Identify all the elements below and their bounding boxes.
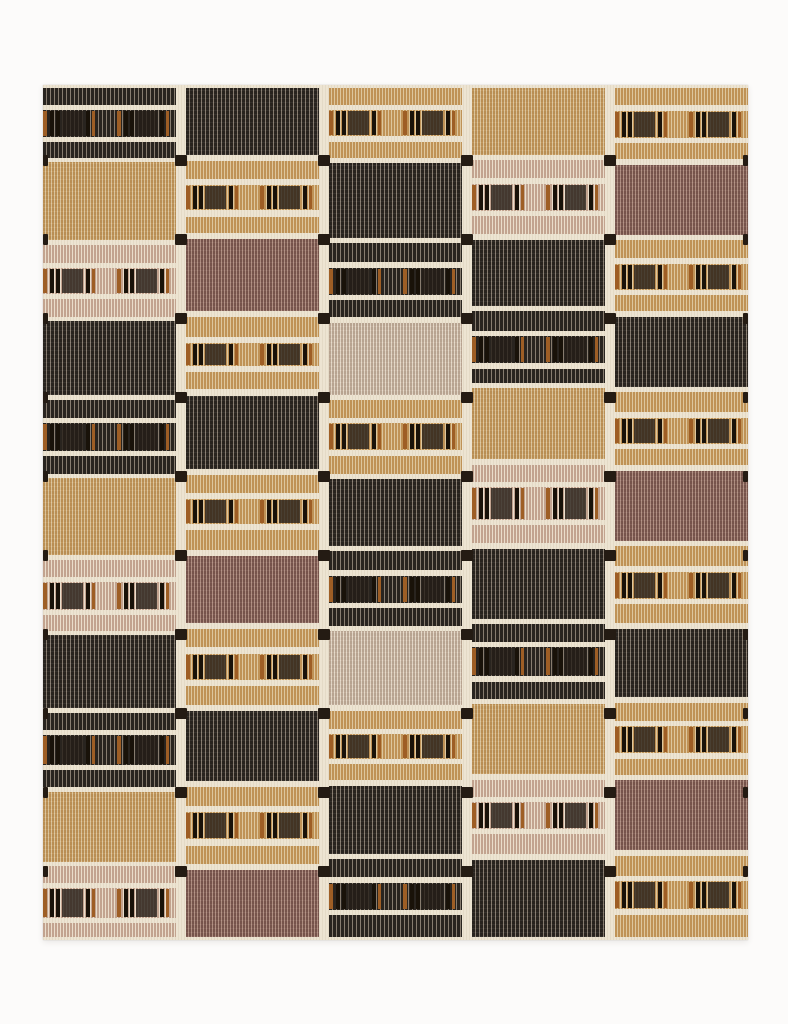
- junction-square: [604, 787, 616, 798]
- camel-band: [186, 686, 319, 705]
- junction-square: [461, 155, 473, 166]
- mauve-block: [186, 556, 319, 623]
- junction-square: [43, 234, 48, 245]
- junction-square: [318, 866, 330, 877]
- junction-square: [175, 313, 187, 324]
- junction-square: [743, 155, 748, 166]
- camel-band: [615, 240, 748, 258]
- mauve-block: [615, 471, 748, 541]
- blush-band: [43, 615, 176, 631]
- junction-square: [318, 471, 330, 482]
- charcoal-block: [43, 635, 176, 708]
- charcoal-dash-band: [43, 735, 176, 765]
- junction-square: [318, 629, 330, 640]
- charcoal-band: [329, 608, 462, 626]
- blush-band: [472, 216, 605, 234]
- junction-square: [604, 629, 616, 640]
- camel-block: [472, 388, 605, 459]
- junction-square: [461, 708, 473, 719]
- junction-square: [743, 471, 748, 482]
- greige-block: [329, 631, 462, 705]
- junction-square: [175, 550, 187, 561]
- blush-dash-band: [43, 888, 176, 918]
- blush-band: [472, 525, 605, 543]
- charcoal-block: [329, 786, 462, 854]
- charcoal-band: [472, 369, 605, 383]
- camel-band: [615, 915, 748, 937]
- junction-square: [604, 234, 616, 245]
- charcoal-band: [329, 859, 462, 877]
- junction-square: [43, 313, 48, 324]
- charcoal-block: [329, 479, 462, 546]
- junction-square: [175, 866, 187, 877]
- charcoal-block: [615, 317, 748, 387]
- camel-band: [186, 530, 319, 550]
- camel-dash-band: [186, 812, 319, 839]
- camel-dash-band: [615, 418, 748, 444]
- camel-band: [186, 317, 319, 337]
- blush-band: [472, 160, 605, 178]
- junction-square: [461, 471, 473, 482]
- junction-square: [461, 313, 473, 324]
- camel-dash-band: [615, 726, 748, 753]
- junction-square: [743, 629, 748, 640]
- camel-band: [615, 392, 748, 412]
- blush-band: [43, 299, 176, 317]
- camel-dash-band: [186, 499, 319, 524]
- camel-band: [615, 856, 748, 876]
- charcoal-block: [186, 396, 319, 469]
- charcoal-band: [43, 142, 176, 158]
- mauve-block: [615, 165, 748, 235]
- mauve-block: [615, 780, 748, 850]
- camel-band: [186, 787, 319, 806]
- charcoal-dash-band: [472, 647, 605, 676]
- camel-band: [186, 372, 319, 389]
- charcoal-band: [329, 300, 462, 317]
- camel-band: [329, 456, 462, 474]
- rug-photo: [43, 85, 748, 940]
- rug-column-3: [329, 85, 462, 940]
- junction-square: [743, 313, 748, 324]
- rug-column-1: [43, 85, 176, 940]
- charcoal-block: [472, 860, 605, 937]
- charcoal-block: [186, 711, 319, 781]
- blush-dash-band: [472, 184, 605, 211]
- camel-band: [329, 142, 462, 158]
- camel-band: [329, 400, 462, 418]
- blush-dash-band: [43, 582, 176, 610]
- mauve-block: [186, 870, 319, 937]
- camel-band: [615, 88, 748, 105]
- camel-band: [329, 711, 462, 729]
- photo-stage: [0, 0, 788, 1024]
- charcoal-block: [329, 163, 462, 238]
- camel-band: [186, 629, 319, 647]
- camel-band: [615, 295, 748, 311]
- rug-column-4: [472, 85, 605, 940]
- camel-dash-band: [186, 185, 319, 210]
- junction-square: [743, 234, 748, 245]
- camel-block: [43, 478, 176, 555]
- junction-square: [743, 550, 748, 561]
- charcoal-dash-band: [329, 268, 462, 295]
- greige-block: [329, 323, 462, 395]
- camel-dash-band: [615, 572, 748, 599]
- junction-square: [318, 234, 330, 245]
- charcoal-band: [472, 624, 605, 642]
- charcoal-band: [472, 682, 605, 699]
- junction-square: [43, 471, 48, 482]
- charcoal-block: [186, 88, 319, 155]
- camel-dash-band: [615, 264, 748, 290]
- junction-square: [461, 234, 473, 245]
- blush-dash-band: [472, 802, 605, 829]
- charcoal-block: [43, 321, 176, 395]
- charcoal-band: [329, 551, 462, 570]
- camel-band: [615, 759, 748, 775]
- blush-band: [43, 923, 176, 937]
- junction-square: [318, 392, 330, 403]
- junction-square: [43, 629, 48, 640]
- camel-band: [615, 703, 748, 721]
- junction-square: [461, 866, 473, 877]
- junction-square: [604, 708, 616, 719]
- camel-band: [186, 161, 319, 179]
- mauve-block: [186, 239, 319, 311]
- charcoal-dash-band: [329, 576, 462, 603]
- camel-block: [472, 88, 605, 155]
- junction-square: [604, 313, 616, 324]
- charcoal-block: [472, 549, 605, 619]
- junction-square: [175, 392, 187, 403]
- camel-band: [329, 88, 462, 105]
- junction-square: [43, 155, 48, 166]
- camel-dash-band: [186, 343, 319, 366]
- junction-square: [43, 787, 48, 798]
- junction-square: [461, 392, 473, 403]
- junction-square: [318, 313, 330, 324]
- charcoal-block: [615, 629, 748, 697]
- camel-band: [186, 217, 319, 233]
- camel-dash-band: [615, 111, 748, 138]
- junction-square: [175, 234, 187, 245]
- junction-square: [461, 787, 473, 798]
- junction-square: [43, 392, 48, 403]
- junction-square: [43, 550, 48, 561]
- charcoal-dash-band: [43, 110, 176, 137]
- junction-square: [604, 155, 616, 166]
- junction-square: [743, 866, 748, 877]
- blush-band: [43, 245, 176, 263]
- camel-band: [615, 449, 748, 465]
- junction-square: [318, 155, 330, 166]
- camel-block: [43, 792, 176, 862]
- charcoal-band: [43, 400, 176, 418]
- junction-square: [43, 866, 48, 877]
- blush-band: [43, 560, 176, 577]
- camel-dash-band: [186, 654, 319, 680]
- charcoal-band: [472, 311, 605, 331]
- rug-column-5: [615, 85, 748, 940]
- blush-band: [472, 834, 605, 854]
- junction-square: [604, 550, 616, 561]
- camel-dash-band: [329, 110, 462, 136]
- blush-band: [472, 780, 605, 797]
- junction-square: [175, 787, 187, 798]
- junction-square: [461, 629, 473, 640]
- rug-column-2: [186, 85, 319, 940]
- junction-square: [604, 471, 616, 482]
- junction-square: [175, 155, 187, 166]
- camel-band: [615, 604, 748, 623]
- charcoal-band: [329, 915, 462, 937]
- camel-dash-band: [329, 734, 462, 759]
- junction-square: [743, 708, 748, 719]
- blush-dash-band: [472, 487, 605, 520]
- junction-square: [743, 392, 748, 403]
- charcoal-band: [43, 456, 176, 474]
- blush-dash-band: [43, 268, 176, 294]
- blush-band: [472, 465, 605, 482]
- camel-band: [186, 475, 319, 493]
- camel-block: [472, 704, 605, 774]
- junction-square: [318, 787, 330, 798]
- junction-square: [175, 471, 187, 482]
- camel-dash-band: [329, 423, 462, 450]
- junction-square: [604, 866, 616, 877]
- junction-square: [43, 708, 48, 719]
- camel-band: [186, 846, 319, 864]
- blush-band: [43, 866, 176, 883]
- junction-square: [461, 550, 473, 561]
- camel-band: [615, 546, 748, 566]
- junction-square: [743, 787, 748, 798]
- charcoal-dash-band: [472, 336, 605, 363]
- camel-band: [615, 143, 748, 159]
- junction-square: [318, 708, 330, 719]
- junction-square: [175, 629, 187, 640]
- camel-block: [43, 162, 176, 240]
- charcoal-block: [472, 240, 605, 306]
- charcoal-dash-band: [43, 423, 176, 451]
- junction-square: [175, 708, 187, 719]
- junction-square: [604, 392, 616, 403]
- charcoal-dash-band: [329, 883, 462, 910]
- camel-band: [329, 764, 462, 780]
- camel-dash-band: [615, 881, 748, 909]
- charcoal-band: [329, 243, 462, 262]
- charcoal-band: [43, 88, 176, 105]
- charcoal-band: [43, 713, 176, 730]
- charcoal-band: [43, 770, 176, 787]
- junction-square: [318, 550, 330, 561]
